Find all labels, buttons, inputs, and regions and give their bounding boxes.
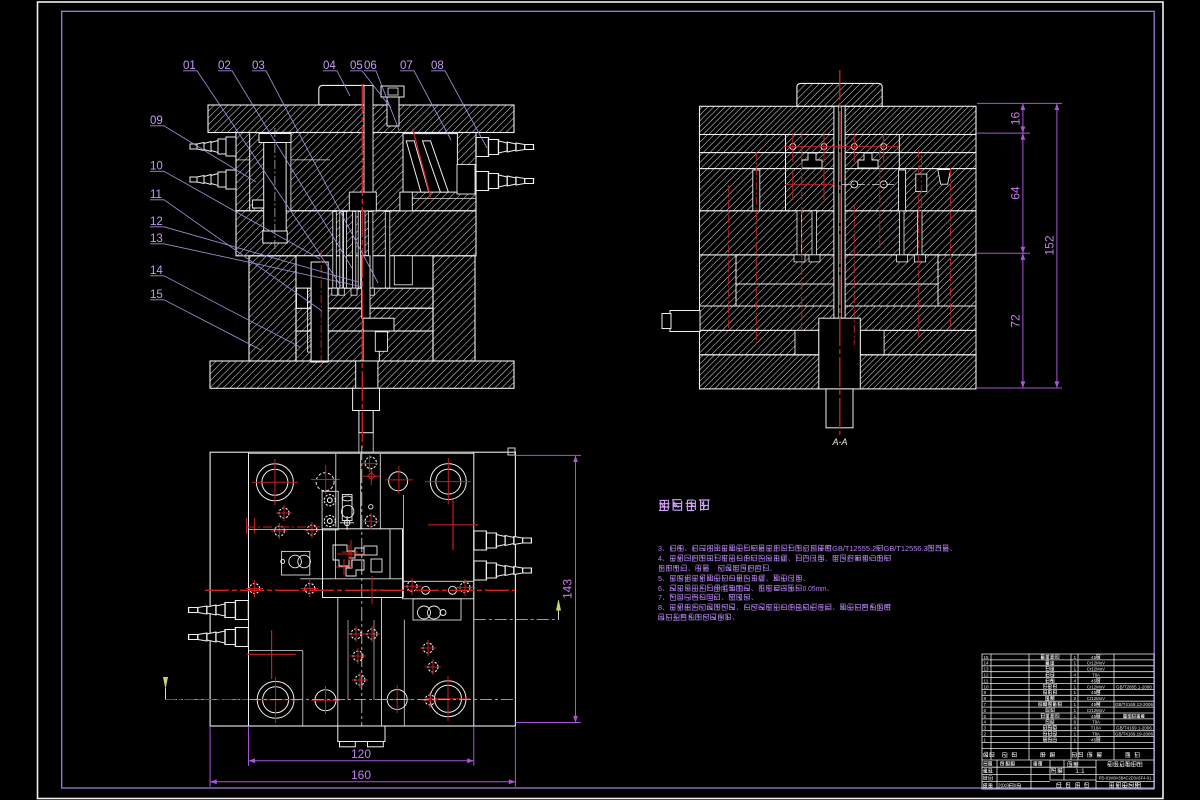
svg-text:1:1: 1:1 bbox=[1075, 769, 1085, 775]
svg-text:72: 72 bbox=[1009, 314, 1023, 328]
svg-text:45: 45 bbox=[1091, 737, 1097, 743]
svg-text:01: 01 bbox=[183, 60, 196, 72]
svg-text:Cr12MoV: Cr12MoV bbox=[1087, 667, 1106, 673]
svg-text:1: 1 bbox=[1074, 737, 1077, 743]
svg-text:8: 8 bbox=[658, 603, 662, 612]
svg-text:Cr12MoV: Cr12MoV bbox=[1087, 661, 1106, 667]
svg-text:03: 03 bbox=[252, 60, 265, 72]
svg-text:45: 45 bbox=[1091, 702, 1097, 708]
svg-text:1: 1 bbox=[1074, 667, 1077, 673]
svg-text:6: 6 bbox=[1074, 720, 1077, 726]
svg-text:45: 45 bbox=[1091, 678, 1097, 684]
svg-text:160: 160 bbox=[351, 768, 371, 782]
svg-text:1: 1 bbox=[1074, 661, 1077, 667]
svg-text:3: 3 bbox=[984, 726, 987, 731]
svg-text:152: 152 bbox=[1043, 235, 1057, 255]
svg-text:Cr12MoV: Cr12MoV bbox=[1087, 684, 1106, 690]
svg-text:1: 1 bbox=[1074, 714, 1077, 720]
svg-text:04: 04 bbox=[323, 60, 336, 72]
svg-text:1: 1 bbox=[1074, 702, 1077, 708]
svg-text:12: 12 bbox=[150, 216, 163, 228]
svg-text:1: 1 bbox=[1074, 708, 1077, 714]
svg-text:11: 11 bbox=[150, 189, 162, 201]
svg-text:9: 9 bbox=[984, 690, 987, 695]
svg-text:08: 08 bbox=[431, 60, 444, 72]
svg-text:09: 09 bbox=[150, 115, 163, 127]
svg-text:4: 4 bbox=[1074, 678, 1077, 684]
svg-text:5: 5 bbox=[984, 714, 987, 719]
svg-text:7: 7 bbox=[658, 593, 662, 602]
svg-text:64: 64 bbox=[1009, 186, 1023, 200]
svg-text:1: 1 bbox=[1074, 732, 1077, 738]
svg-text:06: 06 bbox=[364, 60, 377, 72]
svg-text:A-A: A-A bbox=[831, 437, 847, 447]
svg-text:T8A: T8A bbox=[1092, 732, 1100, 738]
svg-text:4: 4 bbox=[1074, 726, 1077, 732]
svg-text:GB/T4169.13-2006: GB/T4169.13-2006 bbox=[1115, 702, 1154, 707]
svg-text:120: 120 bbox=[351, 747, 371, 761]
svg-text:45: 45 bbox=[1091, 655, 1097, 661]
svg-text:45: 45 bbox=[1091, 714, 1097, 720]
svg-text:5: 5 bbox=[658, 574, 662, 583]
svg-text:T10A: T10A bbox=[1091, 726, 1102, 732]
svg-text:14: 14 bbox=[984, 661, 990, 666]
svg-text:1: 1 bbox=[984, 737, 987, 742]
svg-text:143: 143 bbox=[561, 579, 575, 599]
svg-text:07: 07 bbox=[400, 60, 413, 72]
svg-text:GB/T4169.19-2006: GB/T4169.19-2006 bbox=[1115, 732, 1154, 737]
svg-text:1: 1 bbox=[1074, 655, 1077, 661]
svg-text:GB/T4169.1-2006: GB/T4169.1-2006 bbox=[1116, 726, 1152, 731]
svg-text:3: 3 bbox=[658, 544, 662, 553]
svg-text:Cr12MoV: Cr12MoV bbox=[1087, 708, 1106, 714]
svg-text:1: 1 bbox=[1074, 690, 1077, 696]
svg-text:8: 8 bbox=[984, 696, 987, 701]
svg-text:05: 05 bbox=[350, 60, 363, 72]
svg-text:7: 7 bbox=[984, 702, 987, 707]
svg-text:4: 4 bbox=[658, 554, 662, 563]
svg-text:2: 2 bbox=[1074, 696, 1077, 702]
svg-text:GB/T12556.3: GB/T12556.3 bbox=[884, 544, 928, 553]
svg-text:15: 15 bbox=[984, 655, 990, 660]
svg-text:45: 45 bbox=[1091, 690, 1097, 696]
svg-text:16: 16 bbox=[1009, 112, 1023, 126]
svg-text:4: 4 bbox=[984, 720, 987, 725]
svg-text:6: 6 bbox=[658, 584, 662, 593]
svg-text:14: 14 bbox=[150, 265, 163, 277]
svg-text:02: 02 bbox=[218, 60, 231, 72]
svg-text:11: 11 bbox=[984, 678, 989, 683]
svg-text:13: 13 bbox=[150, 233, 163, 245]
svg-text:4: 4 bbox=[1074, 673, 1077, 679]
svg-text:15: 15 bbox=[150, 289, 163, 301]
svg-text:GB/T12555.2: GB/T12555.2 bbox=[832, 544, 876, 553]
svg-text:6: 6 bbox=[984, 708, 987, 713]
svg-text:Cr12MoV: Cr12MoV bbox=[1087, 696, 1106, 702]
svg-text:20X9: 20X9 bbox=[998, 784, 1009, 790]
svg-text:13: 13 bbox=[984, 667, 990, 672]
svg-text:10: 10 bbox=[150, 161, 163, 173]
svg-text:PD-01M3A5B4C2D3A5F4-01: PD-01M3A5B4C2D3A5F4-01 bbox=[1099, 776, 1152, 781]
svg-text:0.05mm: 0.05mm bbox=[803, 584, 827, 593]
svg-text:T8A: T8A bbox=[1092, 673, 1100, 679]
svg-text:12: 12 bbox=[984, 673, 990, 678]
svg-text:1: 1 bbox=[1074, 684, 1077, 690]
svg-text:2: 2 bbox=[984, 732, 987, 737]
svg-text:GB/T2855.1-2008: GB/T2855.1-2008 bbox=[1116, 684, 1152, 689]
svg-text:10: 10 bbox=[984, 684, 990, 689]
svg-text:T8A: T8A bbox=[1092, 720, 1100, 726]
